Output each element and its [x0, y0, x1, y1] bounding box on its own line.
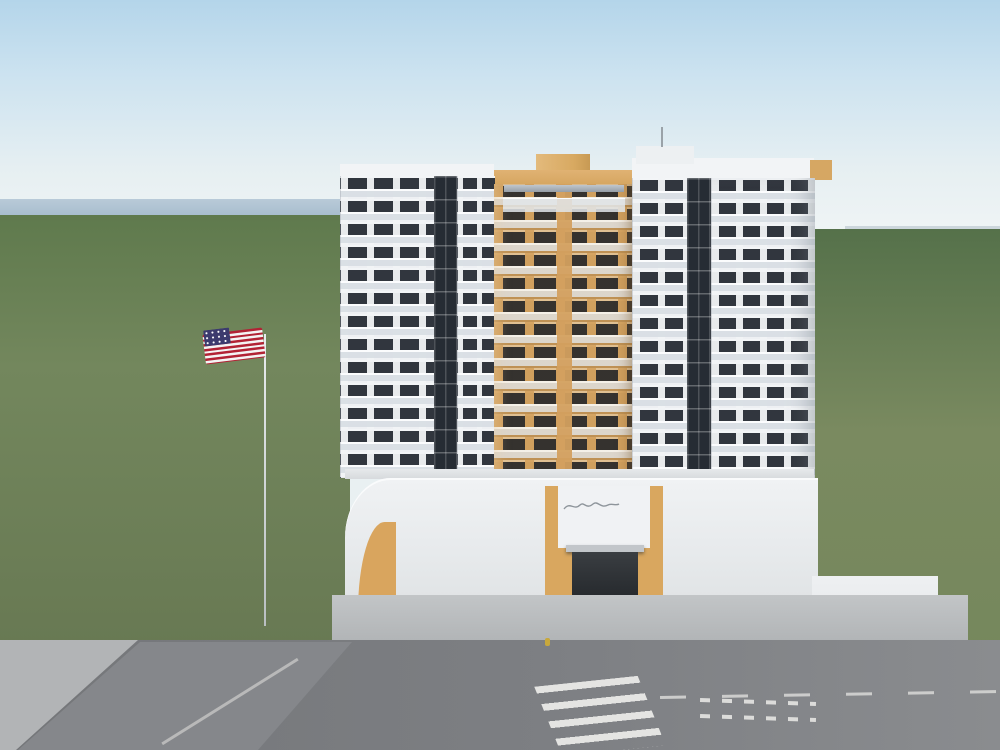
annotation-layer — [0, 0, 1000, 750]
highlight-paint-blob — [487, 168, 503, 180]
annotation-arrow — [308, 114, 433, 160]
highlight-paint-blob — [622, 194, 635, 209]
highlight-box — [492, 172, 614, 219]
highlight-paint-blob — [486, 224, 500, 236]
aerial-photo — [0, 0, 1000, 750]
highlight-paint-blob — [560, 168, 582, 177]
highlight-paint-blob — [540, 227, 564, 236]
